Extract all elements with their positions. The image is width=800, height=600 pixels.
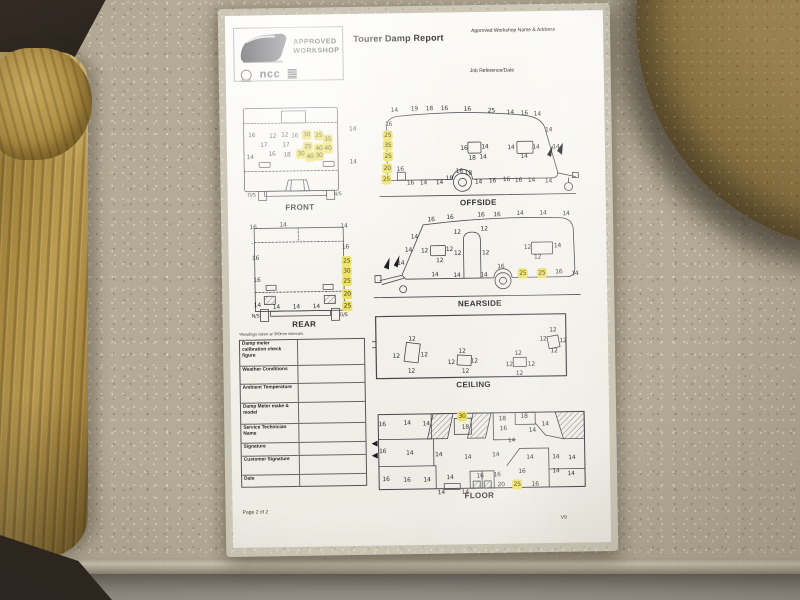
damp-reading: 14 — [431, 271, 438, 278]
damp-reading: 18 — [462, 424, 469, 431]
damp-reading: 14 — [411, 233, 418, 240]
table-row-value-empty — [298, 365, 364, 383]
report-paper: APPROVED WORKSHOP ncc Tourer Damp Report… — [225, 10, 611, 548]
damp-reading: 14 — [545, 177, 552, 184]
damp-reading: 16 — [253, 277, 260, 284]
damp-reading: 18 — [446, 175, 453, 182]
damp-reading: 16 — [252, 255, 259, 262]
damp-reading: 14 — [436, 179, 443, 186]
table-row-label: Damp Meter make & model — [241, 403, 299, 424]
page-title: Tourer Damp Report — [353, 33, 444, 44]
damp-reading: 14 — [313, 303, 320, 310]
damp-reading: 14 — [492, 451, 499, 458]
damp-reading: 14 — [404, 420, 411, 427]
damp-reading: 14 — [481, 143, 488, 150]
damp-reading: 16 — [497, 263, 504, 270]
damp-reading: 16 — [382, 476, 389, 483]
damp-reading: 18 — [520, 413, 527, 420]
table-row-value-empty — [299, 383, 365, 402]
damp-reading: 14 — [480, 271, 487, 278]
damp-reading: 14 — [568, 454, 575, 461]
table-row: Date — [242, 474, 366, 487]
table-row: Customer Signature — [242, 455, 366, 476]
damp-reading: 14 — [526, 454, 533, 461]
damp-reading: 12 — [482, 249, 489, 256]
damp-reading: 14 — [273, 304, 280, 311]
damp-reading: 18 — [499, 415, 506, 422]
damp-reading: 14 — [406, 450, 413, 457]
job-reference-date-label: Job Reference/Date — [470, 67, 515, 74]
table-row-label: Damp meter calibration check figure — [240, 340, 298, 366]
damp-reading: 12 — [269, 133, 276, 140]
damp-reading: 16 — [456, 168, 463, 175]
damp-reading: 35 — [324, 136, 331, 143]
damp-reading: 12 — [420, 351, 427, 358]
damp-reading: 14 — [475, 178, 482, 185]
front-outline-drawing — [238, 104, 360, 218]
ceiling-diagram: CEILING 12121212121212121212121212121212 — [372, 311, 575, 398]
damp-reading: 25 — [488, 107, 495, 114]
damp-reading: 12 — [528, 361, 535, 368]
damp-reading: 16 — [515, 177, 522, 184]
damp-reading: 12 — [514, 350, 521, 357]
damp-reading: 14 — [508, 437, 515, 444]
damp-reading: 14 — [542, 420, 549, 427]
damp-reading: 14 — [438, 489, 445, 496]
table-row-value-empty — [299, 423, 365, 442]
readings-interval-note: *Readings taken at 300mm intervals. — [239, 331, 304, 337]
damp-reading: 12 — [393, 353, 400, 360]
damp-reading: 17 — [282, 142, 289, 149]
damp-reading: 12 — [448, 359, 455, 366]
damp-reading: 14 — [539, 209, 546, 216]
damp-reading: 14 — [453, 272, 460, 279]
report-details-table: Damp meter calibration check figureWeath… — [239, 338, 367, 488]
side-label: N/S — [334, 191, 342, 197]
damp-reading: 12 — [524, 244, 531, 251]
table-row-value-empty — [300, 442, 366, 455]
damp-reading: 16 — [521, 110, 528, 117]
damp-reading: 14 — [397, 260, 404, 267]
floor-strip-bottom — [0, 574, 800, 600]
damp-reading: 25 — [384, 132, 391, 139]
damp-reading: 16 — [249, 224, 256, 231]
damp-reading: 25 — [304, 143, 311, 150]
damp-reading: 25 — [538, 269, 545, 276]
floor-diagram: FLOOR 1614143018181618141416141414141414… — [369, 406, 588, 503]
front-caption: FRONT — [240, 202, 360, 213]
damp-reading: 25 — [514, 481, 521, 488]
table-row: Damp Meter make & model — [241, 402, 365, 425]
damp-reading: 12 — [446, 246, 453, 253]
damp-reading: 12 — [539, 335, 546, 342]
damp-reading: 16 — [427, 216, 434, 223]
table-row-label: Customer Signature — [242, 456, 300, 475]
damp-reading: 18 — [426, 105, 433, 112]
offside-outline-drawing — [374, 98, 581, 211]
damp-reading: 30 — [297, 150, 304, 157]
counter-front-edge — [0, 558, 800, 575]
damp-reading: 40 — [306, 153, 313, 160]
damp-reading: 14 — [420, 179, 427, 186]
damp-reading: 14 — [567, 470, 574, 477]
damp-reading: 14 — [529, 427, 536, 434]
damp-reading: 16 — [477, 211, 484, 218]
damp-reading: 16 — [460, 145, 467, 152]
damp-reading: 16 — [503, 176, 510, 183]
damp-reading: 14 — [520, 153, 527, 160]
damp-reading: 12 — [421, 247, 428, 254]
damp-reading: 20 — [498, 481, 505, 488]
front-diagram: FRONT 1614121216302535171725404016183040… — [238, 104, 360, 218]
damp-reading: 25 — [383, 176, 390, 183]
damp-reading: 19 — [411, 105, 418, 112]
damp-reading: 25 — [315, 132, 322, 139]
damp-reading: 14 — [391, 107, 398, 114]
damp-reading: 20 — [384, 165, 391, 172]
damp-reading: 14 — [349, 158, 356, 165]
damp-reading: 12 — [471, 358, 478, 365]
damp-reading: 14 — [528, 177, 535, 184]
damp-reading: 12 — [408, 368, 415, 375]
table-row: Ambient Temperature — [241, 383, 365, 404]
damp-reading: 12 — [454, 250, 461, 257]
damp-reading: 16 — [403, 477, 410, 484]
damp-reading: 14 — [545, 126, 552, 133]
damp-reading: 16 — [397, 166, 404, 173]
damp-reading: 16 — [342, 244, 349, 251]
damp-reading: 18 — [465, 170, 472, 177]
damp-reading: 16 — [464, 106, 471, 113]
damp-reading: 14 — [552, 467, 559, 474]
damp-reading: 30 — [315, 152, 322, 159]
damp-reading: 14 — [246, 154, 253, 161]
damp-reading: 14 — [562, 210, 569, 217]
damp-reading: 16 — [379, 421, 386, 428]
damp-reading: 14 — [554, 242, 561, 249]
damp-reading: 16 — [493, 471, 500, 478]
table-row-value-empty — [300, 474, 366, 486]
damp-reading: 25 — [343, 258, 350, 265]
damp-reading: 14 — [507, 109, 514, 116]
damp-reading: 16 — [493, 211, 500, 218]
damp-reading: 18 — [468, 155, 475, 162]
certification-roundel-icon — [241, 69, 252, 80]
damp-reading: 16 — [518, 468, 525, 475]
damp-reading: 25 — [384, 153, 391, 160]
damp-reading: 12 — [462, 368, 469, 375]
damp-reading: 12 — [506, 361, 513, 368]
table-row-value-empty — [298, 339, 364, 365]
damp-reading: 14 — [435, 451, 442, 458]
approved-workshop-logo: APPROVED WORKSHOP ncc — [233, 26, 344, 82]
damp-reading: 14 — [532, 144, 539, 151]
damp-reading: 14 — [516, 210, 523, 217]
damp-reading: 12 — [436, 257, 443, 264]
damp-reading: 14 — [349, 125, 356, 132]
damp-reading: 16 — [532, 481, 539, 488]
workshop-name-address-label: Approved Workshop Name & Address — [471, 27, 555, 34]
damp-reading: 12 — [534, 254, 541, 261]
caravan-logo-graphic — [237, 30, 290, 67]
damp-reading: 16 — [441, 105, 448, 112]
damp-reading: 14 — [340, 223, 347, 230]
damp-reading: 12 — [481, 225, 488, 232]
damp-reading: 40 — [324, 145, 331, 152]
damp-reading: 14 — [464, 454, 471, 461]
damp-reading: 30 — [458, 413, 465, 420]
damp-reading: 14 — [254, 302, 261, 309]
damp-reading: 14 — [462, 489, 469, 496]
damp-reading: 12 — [516, 370, 523, 377]
damp-reading: 12 — [281, 132, 288, 139]
table-row-label: Weather Conditions — [240, 366, 298, 384]
damp-report-sheet: APPROVED WORKSHOP ncc Tourer Damp Report… — [218, 3, 619, 557]
damp-reading: 16 — [500, 425, 507, 432]
damp-reading: 17 — [260, 142, 267, 149]
form-version: V9 — [561, 515, 567, 521]
offside-diagram: OFFSIDE 14191816162514161416253525202516… — [374, 98, 581, 211]
damp-reading: 14 — [534, 111, 541, 118]
damp-reading: 35 — [384, 142, 391, 149]
damp-reading: 18 — [283, 151, 290, 158]
damp-reading: 16 — [446, 214, 453, 221]
damp-reading: 14 — [507, 144, 514, 151]
damp-reading: 25 — [344, 303, 351, 310]
damp-reading: 20 — [344, 291, 351, 298]
damp-reading: 16 — [291, 132, 298, 139]
damp-reading: 30 — [303, 131, 310, 138]
damp-reading: 12 — [454, 229, 461, 236]
table-row-label: Date — [242, 475, 300, 487]
damp-reading: 16 — [407, 180, 414, 187]
ncc-logo: ncc — [260, 68, 281, 80]
logo-word-workshop: WORKSHOP — [293, 47, 339, 56]
rear-diagram: REAR 161414-161614162530252025141414N/SO… — [245, 220, 362, 330]
page-number: Page 2 of 2 — [243, 509, 269, 515]
damp-reading: 14 — [571, 270, 578, 277]
damp-reading: 16 — [489, 177, 496, 184]
table-row-value-empty — [300, 455, 366, 474]
damp-reading: 14 — [552, 143, 559, 150]
accreditation-mark-icon — [288, 69, 297, 79]
damp-reading: 14 — [446, 474, 453, 481]
table-row-label: Ambient Temperature — [241, 384, 299, 403]
side-label: O/S — [339, 312, 347, 318]
damp-reading: 12 — [458, 348, 465, 355]
nearside-diagram: NEARSIDE 1616161614141414141412121212121… — [371, 206, 588, 309]
nearside-outline-drawing — [371, 206, 588, 309]
table-row: Service Technician Name — [241, 423, 365, 444]
side-label: N/S — [252, 313, 260, 319]
table-row-label: Service Technician Name — [241, 424, 299, 443]
rear-caption: REAR — [247, 319, 362, 330]
table-row: Weather Conditions — [240, 365, 364, 385]
damp-reading: 12 — [559, 337, 566, 344]
damp-reading: 14 — [423, 476, 430, 483]
table-row-label: Signature — [242, 443, 300, 456]
damp-reading: 12 — [550, 347, 557, 354]
damp-reading: 14 — [479, 153, 486, 160]
damp-reading: 30 — [343, 268, 350, 275]
table-row: Damp meter calibration check figure — [240, 339, 364, 367]
damp-reading: 12 — [549, 326, 556, 333]
damp-reading: 16 — [476, 472, 483, 479]
damp-reading: 25 — [343, 278, 350, 285]
table-row-value-empty — [299, 402, 365, 423]
damp-reading: 16 — [248, 132, 255, 139]
damp-reading: 14 — [552, 453, 559, 460]
damp-reading: 14 — [423, 420, 430, 427]
damp-reading: 16 — [268, 151, 275, 158]
damp-reading: 14 — [293, 303, 300, 310]
damp-reading: 14 — [279, 222, 286, 229]
damp-reading: 16 — [379, 448, 386, 455]
damp-reading: 16 — [555, 268, 562, 275]
damp-reading: 14 — [405, 247, 412, 254]
damp-reading: 16 — [385, 121, 392, 128]
side-label: O/S — [248, 193, 256, 199]
damp-reading: - — [251, 240, 253, 247]
damp-reading: 25 — [519, 270, 526, 277]
damp-reading: 12 — [408, 336, 415, 343]
